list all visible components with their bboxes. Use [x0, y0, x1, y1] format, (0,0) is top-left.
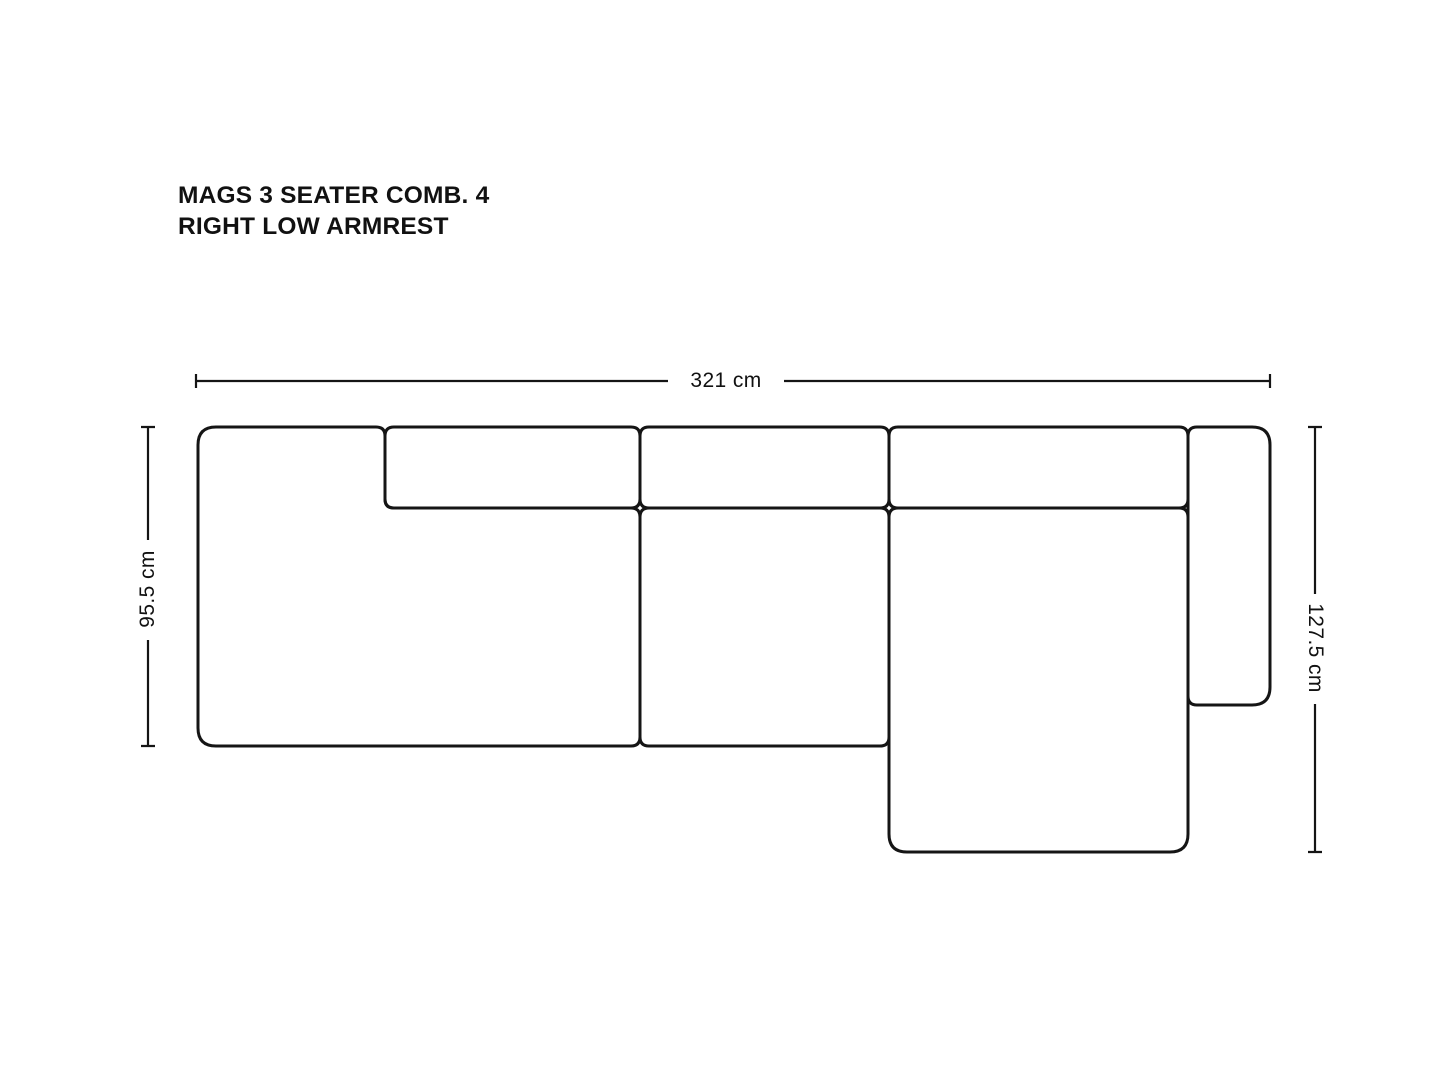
product-dimension-diagram: MAGS 3 SEATER COMB. 4 RIGHT LOW ARMREST … — [0, 0, 1445, 1087]
middle-seat-cushion — [640, 508, 889, 746]
right-low-armrest — [1188, 427, 1270, 705]
middle-backrest-cushion — [640, 427, 889, 508]
dimension-lines-group — [141, 374, 1322, 852]
depth-dimension-label: 95.5 cm — [136, 550, 160, 628]
left-backrest-cushion — [385, 427, 640, 508]
chaise-seat — [889, 508, 1188, 852]
left-module-outline — [198, 427, 640, 746]
chaise-backrest-cushion — [889, 427, 1188, 508]
chaise-depth-dimension-label: 127.5 cm — [1303, 603, 1327, 693]
sofa-outline-group — [198, 427, 1270, 852]
width-dimension-label: 321 cm — [690, 369, 761, 393]
sofa-top-view-drawing — [0, 0, 1445, 1087]
